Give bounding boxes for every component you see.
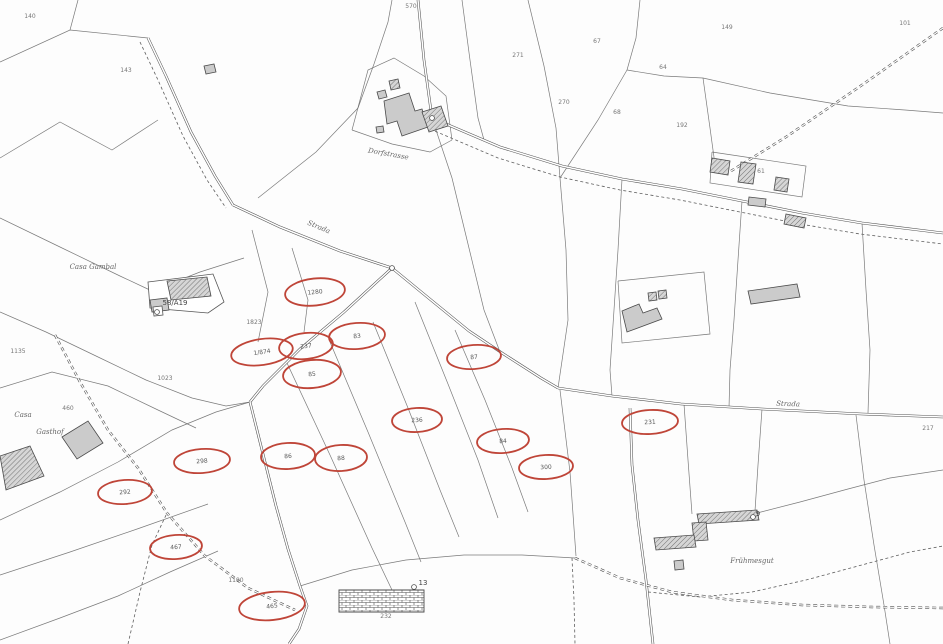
parcel-number-label: 58/A19 (163, 299, 188, 307)
place-name-label: Casa (14, 411, 31, 419)
place-name-label: Gasthof (36, 428, 65, 436)
survey-point-marker (390, 266, 395, 271)
survey-point-marker (155, 310, 160, 315)
circled-parcel-number: 300 (540, 464, 552, 472)
building-hatch (774, 177, 789, 192)
parcel-number-label: 1135 (10, 348, 25, 355)
building-hatch (738, 162, 756, 184)
parcel-number-label: 271 (512, 52, 524, 59)
circled-parcel-number: 83 (353, 333, 361, 341)
parcel-number-label: 67 (593, 38, 601, 45)
building-gray (377, 90, 387, 99)
circled-parcel-number: 298 (196, 458, 208, 466)
parcel-number-label: 149 (721, 24, 733, 31)
survey-point-marker (751, 515, 756, 520)
parcel-number-label: 61 (757, 168, 765, 175)
parcel-number-label: 270 (558, 99, 570, 106)
building-hatch (648, 292, 657, 301)
parcel-number-label: 570 (405, 3, 417, 10)
parcel-number-label: 460 (62, 405, 74, 412)
building-gray (204, 64, 216, 74)
parcel-number-label: 232 (380, 613, 392, 620)
map-background (0, 0, 943, 644)
building-gray (376, 126, 384, 133)
place-name-label: Strada (776, 400, 800, 409)
circled-parcel-number: 465 (266, 602, 278, 610)
circled-parcel-number: 237 (300, 342, 312, 350)
circled-parcel-number: 292 (119, 489, 131, 497)
parcel-number-label: 1023 (157, 375, 172, 382)
parcel-number-label: 140 (24, 13, 36, 20)
circled-parcel-number: 85 (308, 371, 316, 379)
cadastral-map: 1401435702716764270681921491016118231023… (0, 0, 943, 644)
building-hatch (710, 158, 730, 175)
circled-parcel-number: 84 (499, 438, 507, 446)
map-viewport: 1401435702716764270681921491016118231023… (0, 0, 943, 644)
circled-parcel-number: 467 (170, 544, 182, 552)
survey-point-marker (430, 116, 435, 121)
parcel-number-label: 1823 (246, 319, 261, 326)
circled-parcel-number: 88 (337, 455, 345, 462)
circled-parcel-number: 87 (470, 354, 478, 362)
building-brick (339, 590, 424, 612)
parcel-number-label: 64 (659, 64, 667, 71)
circled-parcel-number: 86 (284, 453, 292, 460)
place-name-label: Frühmesgut (729, 557, 774, 565)
parcel-number-label: 68 (613, 109, 621, 116)
parcel-number-label: 143 (120, 67, 132, 74)
parcel-number-label: 9 (756, 510, 760, 518)
place-name-label: Casa Gambal (70, 263, 117, 271)
building-hatch (167, 277, 211, 300)
parcel-number-label: 1190 (228, 577, 243, 584)
building-hatch (654, 535, 696, 550)
parcel-number-label: 192 (676, 122, 688, 129)
building-gray (674, 560, 684, 570)
survey-point-marker (412, 585, 417, 590)
parcel-number-label: 101 (899, 20, 911, 27)
building-gray (748, 197, 766, 207)
parcel-number-label: 217 (922, 425, 934, 432)
parcel-number-label: 13 (419, 579, 428, 587)
circled-parcel-number: 236 (411, 417, 423, 425)
building-hatch (389, 79, 400, 90)
building-hatch (658, 290, 667, 299)
circled-parcel-number: 231 (644, 419, 656, 427)
